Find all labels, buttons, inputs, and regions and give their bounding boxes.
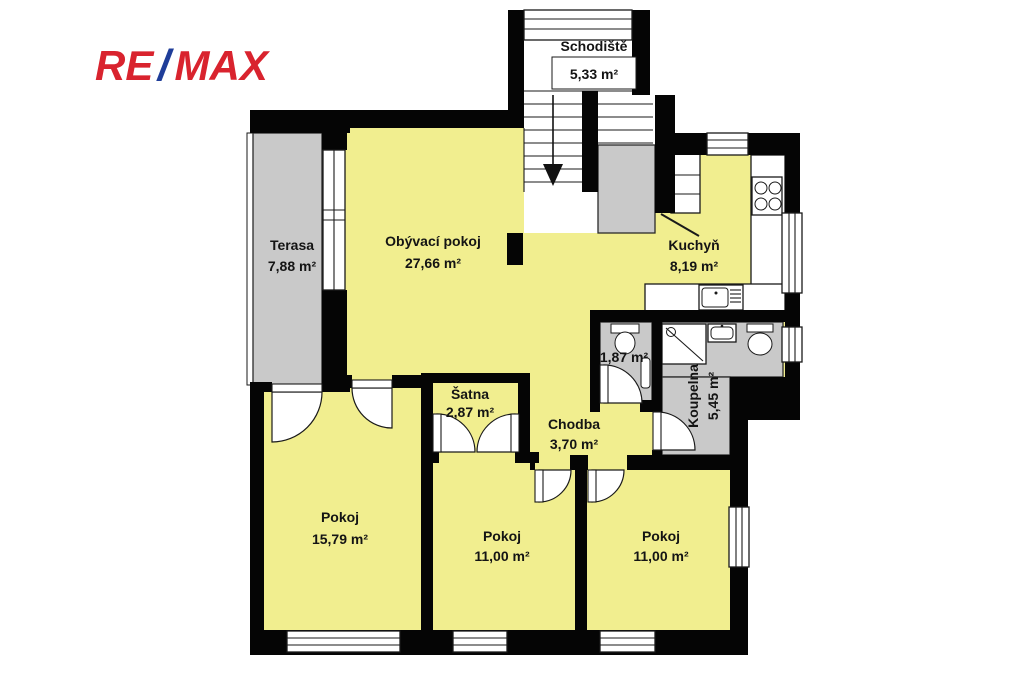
chimney <box>507 233 523 265</box>
label-terasa-name: Terasa <box>270 237 314 253</box>
label-satna-area: 2,87 m² <box>446 404 495 420</box>
exterior-notch-right <box>748 420 818 632</box>
label-terasa-area: 7,88 m² <box>268 258 317 274</box>
room3-side-window <box>729 507 749 567</box>
logo-re: RE <box>95 42 155 89</box>
terrace-window <box>323 150 345 290</box>
entry-landing <box>598 145 655 233</box>
label-pokoj2-area: 11,00 m² <box>474 548 530 564</box>
label-chodba-name: Chodba <box>548 416 600 432</box>
floor-plan: Schodiště 5,33 m² Terasa 7,88 m² Obývací… <box>0 0 1024 683</box>
label-pokoj3-name: Pokoj <box>642 528 680 544</box>
kitchen-side-window <box>782 213 802 293</box>
label-kuchyn-area: 8,19 m² <box>670 258 719 274</box>
logo-slash-icon: / <box>156 41 175 90</box>
kitchen-sink-icon <box>699 285 743 310</box>
label-pokoj2-name: Pokoj <box>483 528 521 544</box>
label-pokoj3-area: 11,00 m² <box>633 548 689 564</box>
svg-text:RE / MAX: RE / MAX <box>95 41 271 90</box>
label-wc-area: 1,87 m² <box>600 349 649 365</box>
stove-icon <box>752 177 782 215</box>
shower-icon <box>662 324 706 364</box>
label-koupelna-name: Koupelna <box>685 364 701 428</box>
stair-window <box>524 10 632 40</box>
label-koupelna-area: 5,45 m² <box>705 372 721 421</box>
stair-divider-wall <box>582 91 598 192</box>
bath-sink-icon <box>708 324 736 342</box>
label-pokoj1-name: Pokoj <box>321 509 359 525</box>
label-obyvaci-name: Obývací pokoj <box>385 233 481 249</box>
label-kuchyn-name: Kuchyň <box>668 237 719 253</box>
kitchen-window <box>707 133 748 155</box>
room2-window <box>453 631 507 652</box>
kitchen-cabinet <box>671 153 700 213</box>
label-satna-name: Šatna <box>451 385 489 402</box>
logo-max: MAX <box>175 42 271 89</box>
remax-logo: RE / MAX <box>95 41 271 90</box>
label-schodiste-name: Schodiště <box>561 38 628 54</box>
bath-toilet-icon <box>747 324 773 355</box>
label-chodba-area: 3,70 m² <box>550 436 599 452</box>
label-pokoj1-area: 15,79 m² <box>312 531 368 547</box>
room1-window <box>287 631 400 652</box>
floor-plan-page: Schodiště 5,33 m² Terasa 7,88 m² Obývací… <box>0 0 1024 683</box>
room3-window <box>600 631 655 652</box>
label-obyvaci-area: 27,66 m² <box>405 255 461 271</box>
label-schodiste-area: 5,33 m² <box>570 66 619 82</box>
bathroom-window <box>782 327 802 362</box>
